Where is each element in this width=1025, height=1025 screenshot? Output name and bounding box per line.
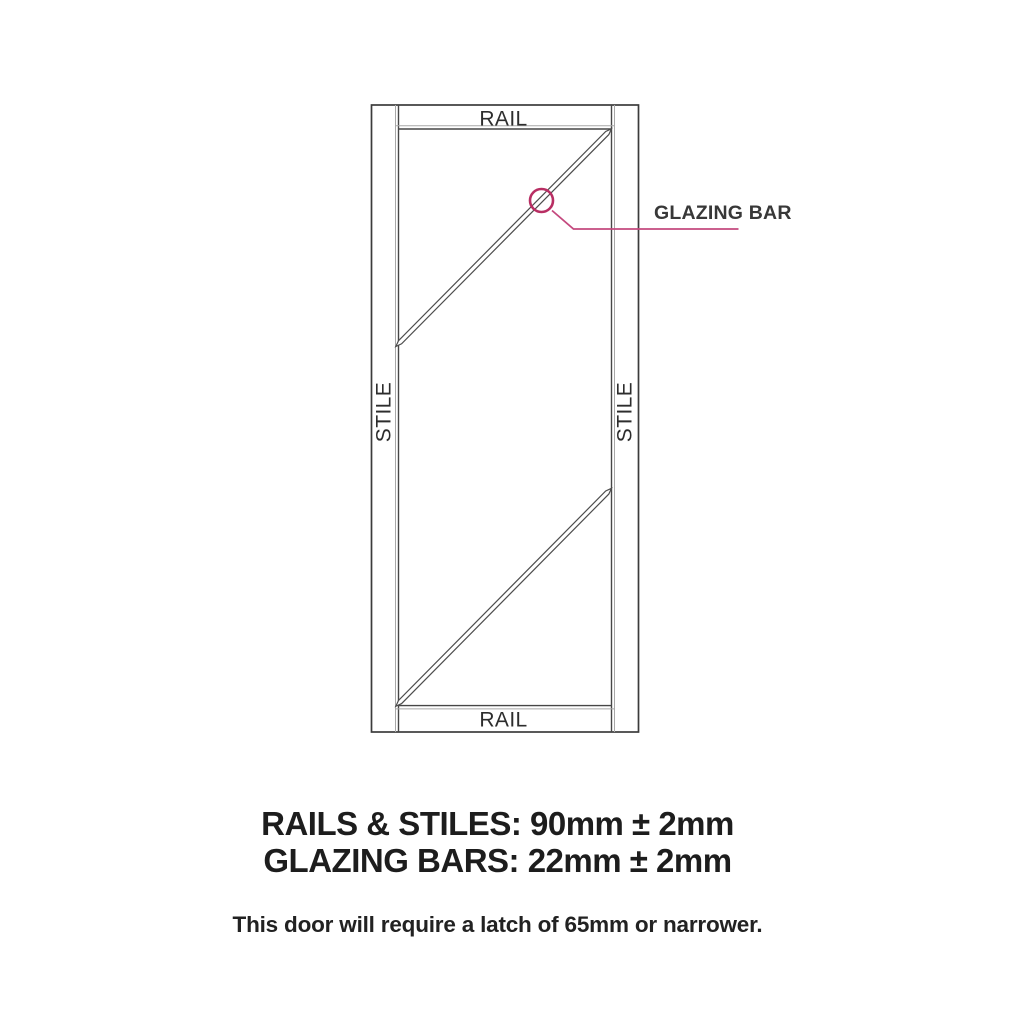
latch-note: This door will require a latch of 65mm o…	[0, 912, 995, 938]
stile-right-label: STILE	[614, 382, 637, 442]
glazing-bar-label: GLAZING BAR	[654, 202, 792, 224]
stile-left-label: STILE	[373, 382, 396, 442]
door-diagram: RAIL RAIL STILE STILE GLAZING BAR	[0, 0, 1025, 780]
glazing-bar-upper	[396, 129, 612, 347]
rail-bottom-label: RAIL	[479, 709, 527, 732]
glazing-bar-lower	[396, 488, 612, 706]
specs-heading: RAILS & STILES: 90mm ± 2mm GLAZING BARS:…	[0, 805, 995, 879]
door-outline	[372, 105, 639, 732]
specs-glazing-bars: GLAZING BARS: 22mm ± 2mm	[0, 842, 995, 879]
specs-rails-stiles: RAILS & STILES: 90mm ± 2mm	[0, 805, 995, 842]
rail-top-label: RAIL	[479, 107, 527, 130]
